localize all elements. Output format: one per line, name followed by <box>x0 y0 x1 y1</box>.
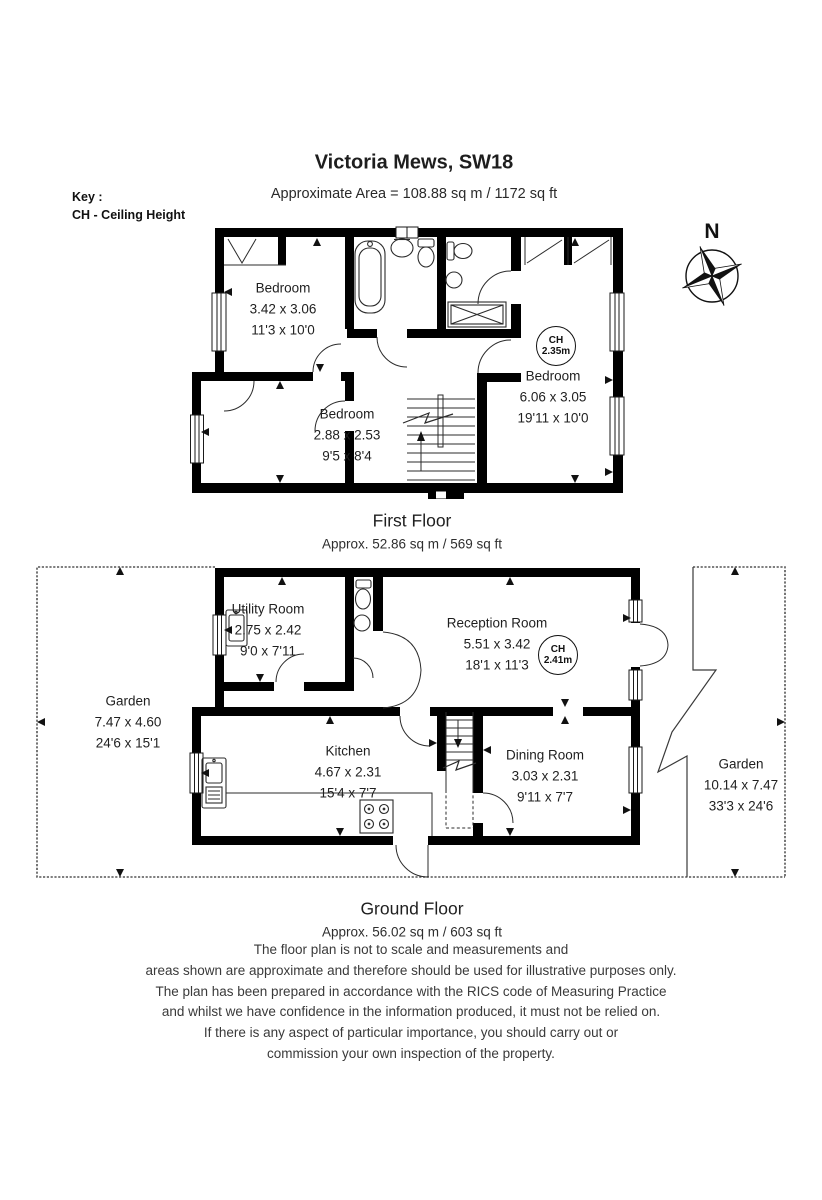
front-door-arc <box>396 845 428 877</box>
garden-break-line <box>658 567 716 877</box>
room-dim-metric: 5.51 x 3.42 <box>445 635 549 656</box>
room-dim-metric: 3.03 x 2.31 <box>493 767 597 788</box>
room-dim-metric: 7.47 x 4.60 <box>95 713 162 734</box>
ceiling-height-badge-first-floor: CH 2.35m <box>536 326 576 366</box>
wc-toilet-icon <box>354 580 371 631</box>
room-dim-metric: 3.42 x 3.06 <box>250 300 317 321</box>
room-dim-metric: 4.67 x 2.31 <box>315 763 382 784</box>
room-name: Bedroom <box>518 367 589 388</box>
room-dim-imperial: 9'11 x 7'7 <box>493 787 597 808</box>
room-label-utility-room: Utility Room 2.75 x 2.42 9'0 x 7'11 <box>232 600 305 663</box>
floorplan-page: Victoria Mews, SW18 Approximate Area = 1… <box>0 0 822 1200</box>
ch-label: CH <box>551 644 565 656</box>
disclaimer-line: areas shown are approximate and therefor… <box>0 961 822 982</box>
room-name: Kitchen <box>315 742 382 763</box>
room-name: Garden <box>95 692 162 713</box>
room-name: Bedroom <box>314 405 381 426</box>
room-dim-metric: 2.88 x 2.53 <box>314 426 381 447</box>
room-name: Dining Room <box>493 746 597 767</box>
disclaimer-line: The floor plan is not to scale and measu… <box>0 940 822 961</box>
page-title: Victoria Mews, SW18 <box>315 152 514 175</box>
room-label-garden-right: Garden 10.14 x 7.47 33'3 x 24'6 <box>704 755 778 818</box>
ch-value: 2.41m <box>544 655 572 667</box>
room-label-dining-room: Dining Room 3.03 x 2.31 9'11 x 7'7 <box>493 746 597 809</box>
disclaimer-line: If there is any aspect of particular imp… <box>0 1023 822 1044</box>
room-dim-imperial: 9'5 x 8'4 <box>314 446 381 467</box>
hob-icon <box>360 800 393 833</box>
room-dim-imperial: 18'1 x 11'3 <box>445 655 549 676</box>
ch-label: CH <box>549 335 563 347</box>
room-dim-metric: 10.14 x 7.47 <box>704 776 778 797</box>
first-floor-caption: First Floor <box>373 511 452 532</box>
ceiling-height-badge-ground-floor: CH 2.41m <box>538 635 578 675</box>
room-dim-imperial: 11'3 x 10'0 <box>250 320 317 341</box>
disclaimer-line: and whilst we have confidence in the inf… <box>0 1002 822 1023</box>
key-entry: CH - Ceiling Height <box>72 207 185 225</box>
room-dim-imperial: 33'3 x 24'6 <box>704 796 778 817</box>
kitchen-sink-icon <box>202 758 226 808</box>
wc-basin-icon <box>354 615 370 631</box>
room-name: Bedroom <box>250 279 317 300</box>
room-dim-imperial: 15'4 x 7'7 <box>315 783 382 804</box>
toilet-icon <box>418 239 434 267</box>
first-floor-plan <box>190 225 640 500</box>
ground-floor-area-caption: Approx. 56.02 sq m / 603 sq ft <box>322 925 502 940</box>
shower-room-basin-icon <box>446 272 462 288</box>
basin-icon <box>391 239 413 257</box>
key-block: Key : CH - Ceiling Height <box>72 189 185 224</box>
room-label-bedroom-1: Bedroom 3.42 x 3.06 11'3 x 10'0 <box>250 279 317 342</box>
room-dim-metric: 2.75 x 2.42 <box>232 621 305 642</box>
disclaimer-line: The plan has been prepared in accordance… <box>0 982 822 1003</box>
room-dim-imperial: 9'0 x 7'11 <box>232 641 305 662</box>
shower-room-toilet-icon <box>446 242 472 288</box>
ground-floor-caption: Ground Floor <box>360 899 463 920</box>
room-dim-imperial: 24'6 x 15'1 <box>95 733 162 754</box>
disclaimer-line: commission your own inspection of the pr… <box>0 1044 822 1065</box>
room-name: Utility Room <box>232 600 305 621</box>
room-label-reception-room: Reception Room 5.51 x 3.42 18'1 x 11'3 <box>445 614 549 677</box>
room-label-bedroom-3: Bedroom 6.06 x 3.05 19'11 x 10'0 <box>518 367 589 430</box>
room-dim-metric: 6.06 x 3.05 <box>518 388 589 409</box>
compass-north-label: N <box>704 220 719 243</box>
room-name: Garden <box>704 755 778 776</box>
room-label-kitchen: Kitchen 4.67 x 2.31 15'4 x 7'7 <box>315 742 382 805</box>
shower-tray-icon <box>448 302 506 327</box>
room-dim-imperial: 19'11 x 10'0 <box>518 408 589 429</box>
french-doors <box>640 624 668 666</box>
key-title: Key : <box>72 189 185 207</box>
stairs-first-floor <box>403 395 475 480</box>
stairs-ground-floor <box>443 712 476 828</box>
ch-value: 2.35m <box>542 346 570 358</box>
bathtub-icon <box>355 241 385 313</box>
approximate-area-line: Approximate Area = 108.88 sq m / 1172 sq… <box>271 186 557 202</box>
room-name: Reception Room <box>445 614 549 635</box>
room-label-garden-left: Garden 7.47 x 4.60 24'6 x 15'1 <box>95 692 162 755</box>
first-floor-area-caption: Approx. 52.86 sq m / 569 sq ft <box>322 537 502 552</box>
compass-icon: N <box>672 218 752 314</box>
disclaimer-block: The floor plan is not to scale and measu… <box>0 940 822 1065</box>
room-label-bedroom-2: Bedroom 2.88 x 2.53 9'5 x 8'4 <box>314 405 381 468</box>
